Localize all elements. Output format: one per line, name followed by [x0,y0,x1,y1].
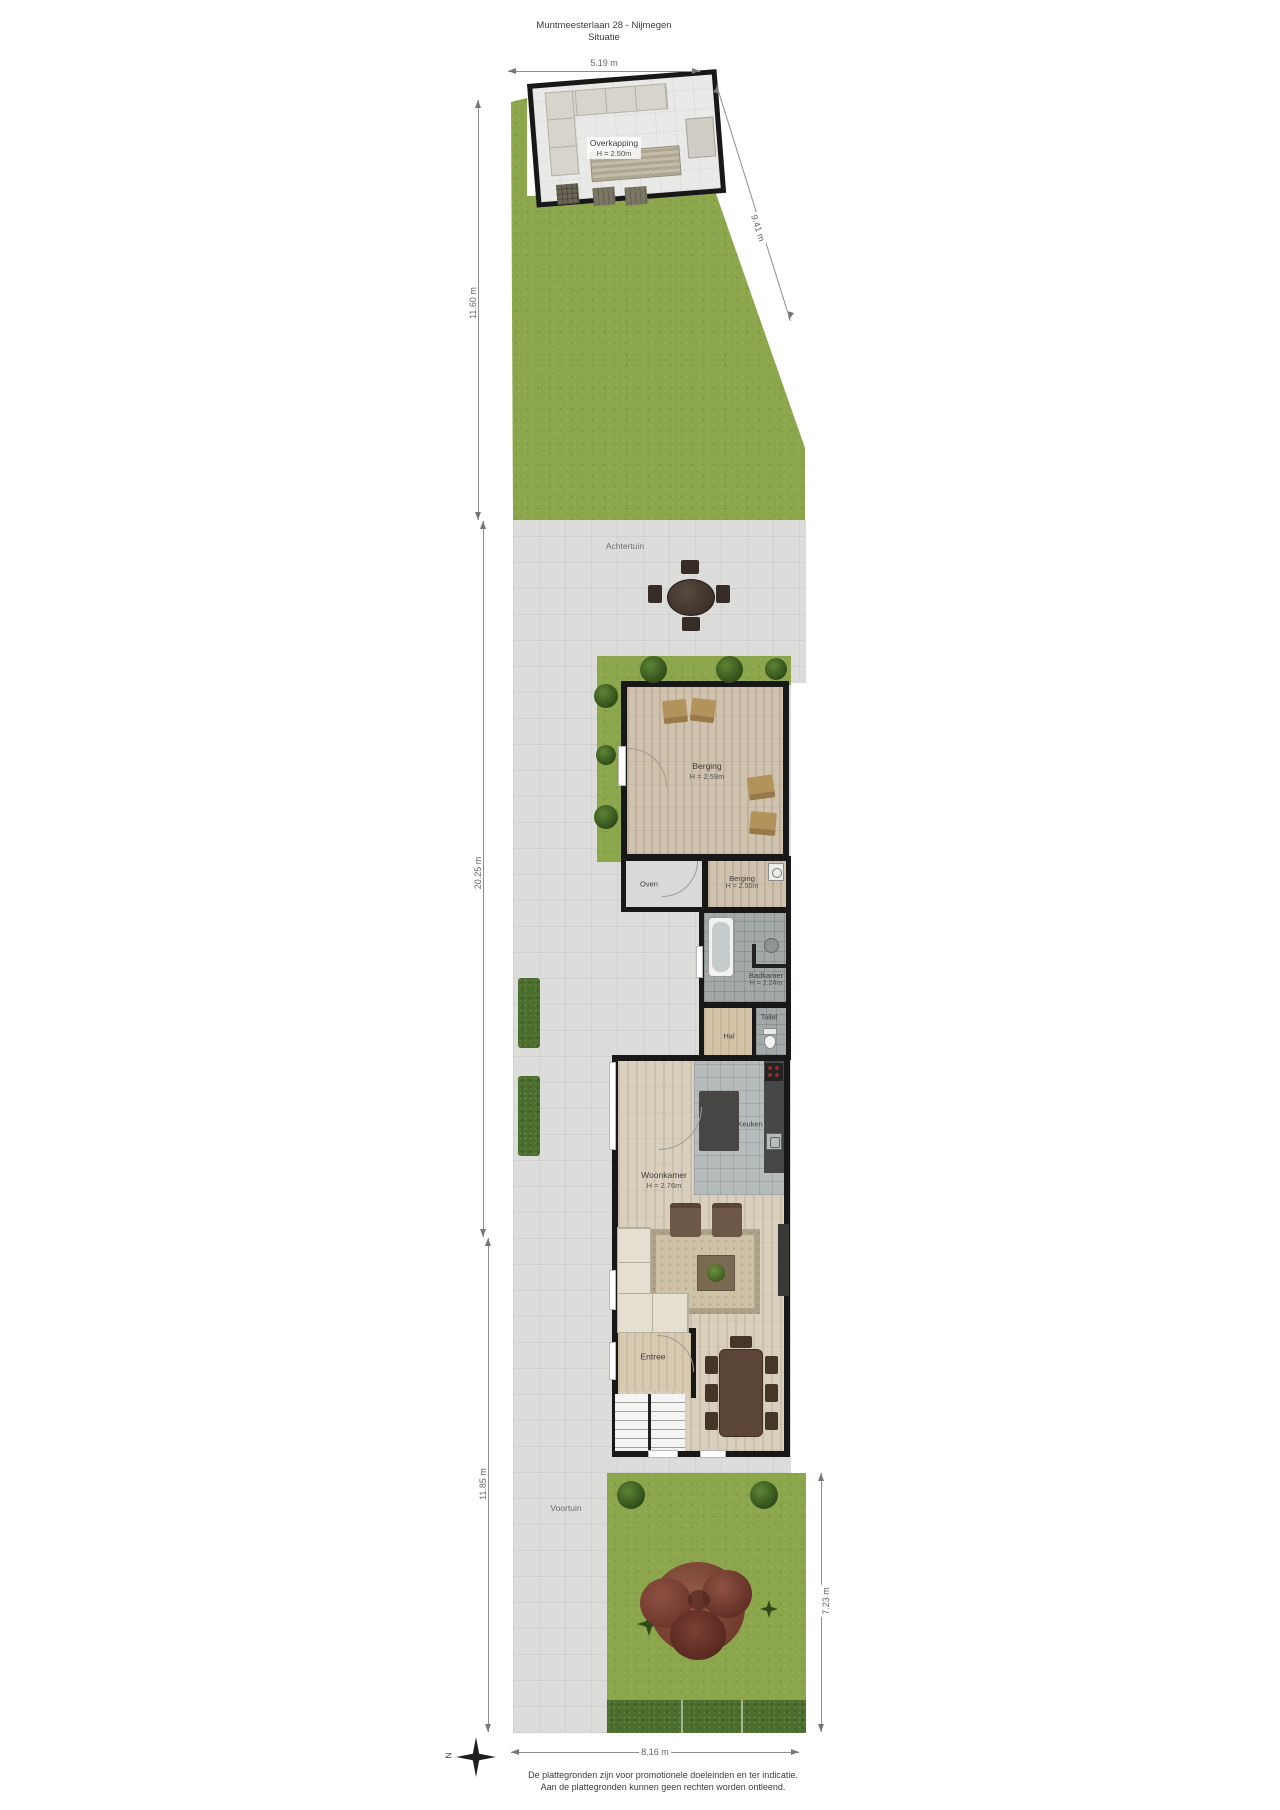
dim-arrow [485,1238,491,1246]
dim-left-lower-label: 11.85 m [478,1466,488,1502]
bush [594,684,618,708]
dim-arrow [818,1473,824,1481]
dim-arrow [475,100,481,108]
garden-chair [716,585,730,603]
living-room-label: Woonkamer H = 2.76m [641,1170,687,1190]
dining-table [719,1349,763,1437]
bathtub [708,917,734,977]
dim-arrow [818,1724,824,1732]
sink-icon [764,938,779,953]
front-hedge [607,1700,806,1733]
facade-window [700,1450,726,1458]
storage-label: Berging H = 2.50m [726,874,759,892]
dining-chair [705,1384,718,1402]
front-tree-round [617,1481,645,1509]
facade-window [648,1450,678,1458]
front-garden-label: Voortuin [550,1503,581,1513]
living-window [609,1270,616,1310]
back-garden-label: Achtertuin [606,541,644,551]
toilet-label: Toilet [761,1015,777,1024]
dim-left-middle-label: 20.25 m [473,855,483,892]
tv-cabinet [778,1224,789,1296]
patio-stool [556,183,580,205]
page-subtitle: Situatie [588,32,620,43]
dim-arrow [475,512,481,520]
hall-label: Hal [723,1031,734,1040]
dim-diagonal-label: 9.41 m [749,211,768,244]
bush [716,656,743,683]
dining-chair [765,1384,778,1402]
patio-chair [685,116,716,158]
shed-lounge-chair [690,698,717,724]
dim-arrow [485,1724,491,1732]
front-tree-round [750,1481,778,1509]
stove-icon [765,1063,783,1081]
page-title: Muntmeesterlaan 28 - Nijmegen [536,20,671,31]
dim-top-label: 5.19 m [588,58,620,68]
bathroom-window [696,946,703,978]
compass-icon [456,1737,496,1777]
dim-left-lower-line [488,1238,489,1732]
toilet-icon [762,1028,778,1050]
shed-label: Berging H = 2.59m [690,761,725,781]
stairs-rail [648,1394,651,1451]
bush [765,658,787,680]
dining-chair [765,1356,778,1374]
armchair [712,1203,742,1237]
dim-top-line [508,71,700,72]
wall-shrub [518,1076,540,1156]
dim-arrow [791,1749,799,1755]
plant-icon [707,1264,725,1282]
coffee-table [697,1255,735,1291]
bush [596,745,616,765]
dim-arrow [511,1749,519,1755]
oven-label: Oven [640,879,658,888]
shed-lounge-chair [749,811,777,836]
living-window [609,1062,616,1150]
washer-icon [768,863,784,881]
overkapping-label: Overkapping H = 2.50m [587,137,641,159]
kitchen-label: Keuken [737,1119,762,1128]
garden-table [667,579,715,616]
sofa [617,1293,689,1333]
entry-label: Entree [640,1352,665,1363]
patio-stool [624,186,647,206]
front-hedge-gap [741,1700,743,1733]
dim-arrow [480,1229,486,1237]
kitchen-sink [766,1133,782,1150]
garden-chair [682,617,700,631]
armchair [670,1203,701,1237]
dim-arrow [786,311,794,320]
autumn-tree [640,1550,755,1665]
patio-stool [592,186,615,206]
dim-right-label: 7.23 m [821,1585,831,1617]
shed-lounge-chair [662,699,688,724]
compass-north-label: N [444,1753,453,1759]
dim-arrow [480,521,486,529]
footer-line1: De plattegronden zijn voor promotionele … [528,1770,798,1780]
dim-left-middle-line [483,521,484,1237]
shed-lounge-chair [747,774,776,800]
dining-chair [765,1412,778,1430]
shed-door [618,746,626,786]
garden-chair [681,560,699,574]
right-margin-strip [791,683,807,1473]
front-hedge-gap [681,1700,683,1733]
dim-left-upper-line [478,100,479,520]
dim-arrow [508,68,516,74]
dim-arrow [692,68,700,74]
floorplan-sheet: Muntmeesterlaan 28 - Nijmegen Situatie A… [0,0,1280,1810]
dining-chair [705,1356,718,1374]
dim-arrow [713,84,721,93]
dining-chair [705,1412,718,1430]
garden-chair [648,585,662,603]
dining-chair [730,1336,752,1348]
wall-shrub [518,978,540,1048]
bush [640,656,667,683]
kitchen-island [699,1091,739,1151]
bathroom-label: Badkamer H = 2.24m [749,971,783,989]
entry-window [609,1342,616,1380]
footer-line2: Aan de plattegronden kunnen geen rechten… [541,1782,786,1792]
bush [594,805,618,829]
dim-left-upper-label: 11.60 m [468,285,478,321]
dim-bottom-label: 8.16 m [639,1747,671,1757]
